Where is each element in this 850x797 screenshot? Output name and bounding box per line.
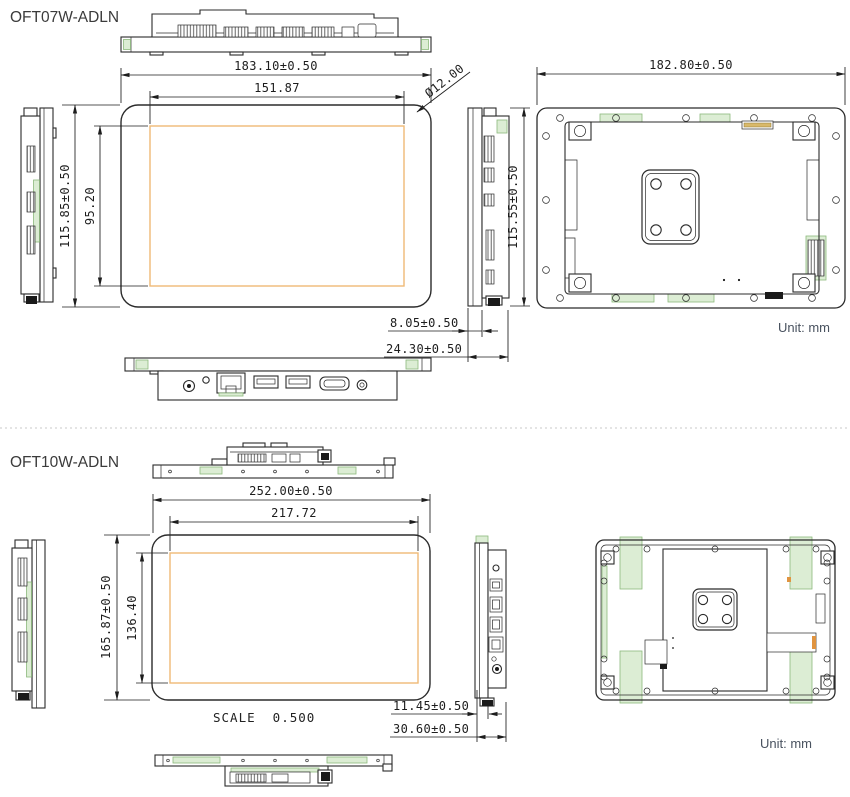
connector <box>18 632 27 662</box>
section1-title: OFT07W-ADLN <box>10 9 119 26</box>
usb-port-side-2 <box>490 617 502 632</box>
flex-cable-end <box>812 636 816 649</box>
oft10w-left-side-view <box>12 540 45 708</box>
dim-text-active-height-10: 136.40 <box>125 595 139 641</box>
dim-text-rear-width-07: 182.80±0.50 <box>649 58 733 72</box>
connector <box>178 25 216 37</box>
dim-active-width-10: 217.72 <box>170 506 418 551</box>
connector <box>484 194 494 206</box>
usb-port-side-1 <box>490 597 502 612</box>
board-connector <box>744 123 771 127</box>
oft07w-left-side-view <box>21 108 56 304</box>
oft07w-right-side-view <box>468 108 509 306</box>
section2-title: OFT10W-ADLN <box>10 454 119 471</box>
dim-text-outer-width-07: 183.10±0.50 <box>234 59 318 73</box>
vesa-mount-plate <box>642 170 699 244</box>
oft07w-top-view <box>121 10 431 55</box>
oft10w-top-view <box>153 443 395 478</box>
oft07w-front-view <box>121 105 431 307</box>
dim-text-outer-width-10: 252.00±0.50 <box>249 484 333 498</box>
oft10w-bottom-view <box>155 755 392 786</box>
drawing-canvas: OFT07W-ADLN 183.10±0.50 151.87 <box>0 0 850 797</box>
connector <box>27 146 35 172</box>
oft07w-rear-view <box>537 108 845 308</box>
oft10w-front-view <box>152 535 430 700</box>
connector <box>312 27 334 37</box>
dim-text-outer-height-10: 165.87±0.50 <box>99 575 113 659</box>
active-area-07 <box>150 126 404 286</box>
dim-active-height-07: 95.20 <box>83 126 148 286</box>
dim-text-outer-height-07: 115.85±0.50 <box>58 164 72 248</box>
connector <box>27 226 35 254</box>
hdmi-port-side <box>490 579 502 591</box>
dim-text-depth-total-10: 30.60±0.50 <box>393 722 469 736</box>
connector <box>18 598 27 620</box>
section1-unit-label: Unit: mm <box>778 320 830 335</box>
connector <box>236 774 266 782</box>
connector <box>484 136 494 162</box>
dim-active-width-07: 151.87 <box>150 81 404 124</box>
oft10w-rear-view <box>596 537 835 703</box>
connector <box>18 558 27 586</box>
connector <box>238 454 266 462</box>
section2-unit-label: Unit: mm <box>760 736 812 751</box>
ethernet-port-side <box>489 637 503 652</box>
technical-drawing-sheet: OFT07W-ADLN 183.10±0.50 151.87 <box>0 0 850 797</box>
oft07w-bottom-view <box>125 358 431 400</box>
connector <box>224 27 248 37</box>
active-area-10 <box>170 553 418 683</box>
dim-text-corner-radius-07: Ø12.00 <box>422 61 467 100</box>
dim-side-height-07: 115.55±0.50 <box>506 108 530 306</box>
connector <box>486 230 494 260</box>
scale-note: SCALE 0.500 <box>213 710 315 725</box>
dim-active-height-10: 136.40 <box>125 553 168 683</box>
connector <box>27 192 35 212</box>
dim-text-active-width-10: 217.72 <box>271 506 317 520</box>
connector <box>256 27 274 37</box>
dim-text-depth-front-07: 8.05±0.50 <box>390 316 459 330</box>
connector <box>808 240 824 276</box>
connector <box>282 27 304 37</box>
dim-text-active-height-07: 95.20 <box>83 187 97 225</box>
dim-rear-width-07: 182.80±0.50 <box>537 58 845 105</box>
dim-text-side-height-07: 115.55±0.50 <box>506 165 520 249</box>
dim-text-active-width-07: 151.87 <box>254 81 300 95</box>
dim-text-depth-total-07: 24.30±0.50 <box>386 342 462 356</box>
dim-text-depth-front-10: 11.45±0.50 <box>393 699 469 713</box>
connector <box>484 168 494 182</box>
dim-corner-radius-07: Ø12.00 <box>417 61 470 112</box>
vesa-mount-plate-10 <box>693 589 737 630</box>
oft10w-right-side-view <box>475 536 506 706</box>
connector <box>486 270 494 284</box>
